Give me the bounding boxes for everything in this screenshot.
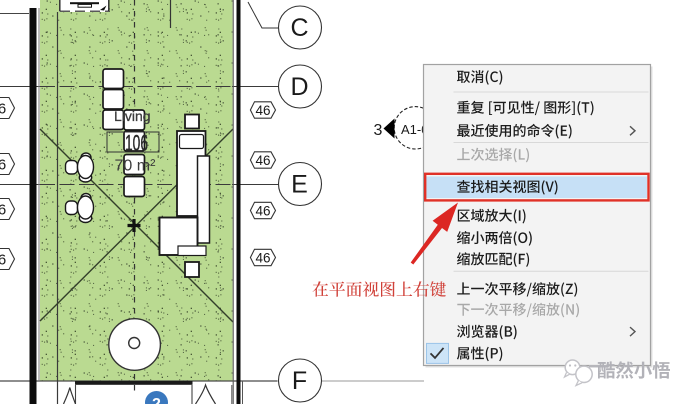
svg-text:6: 6 [0,101,6,118]
svg-text:F: F [292,367,307,395]
svg-text:E: E [291,171,308,199]
svg-text:D: D [290,73,308,101]
svg-text:46: 46 [255,153,270,168]
svg-text:46: 46 [255,204,270,219]
svg-text:3: 3 [374,122,383,139]
svg-text:6: 6 [0,157,6,174]
svg-text:46: 46 [255,103,270,118]
svg-text:Living: Living [114,108,151,124]
svg-text:70 m²: 70 m² [115,158,157,175]
svg-text:46: 46 [255,251,270,266]
svg-text:2: 2 [152,396,161,404]
svg-text:106: 106 [125,131,148,156]
svg-text:6: 6 [0,252,6,269]
svg-text:C: C [290,14,308,42]
svg-text:6: 6 [0,202,6,219]
